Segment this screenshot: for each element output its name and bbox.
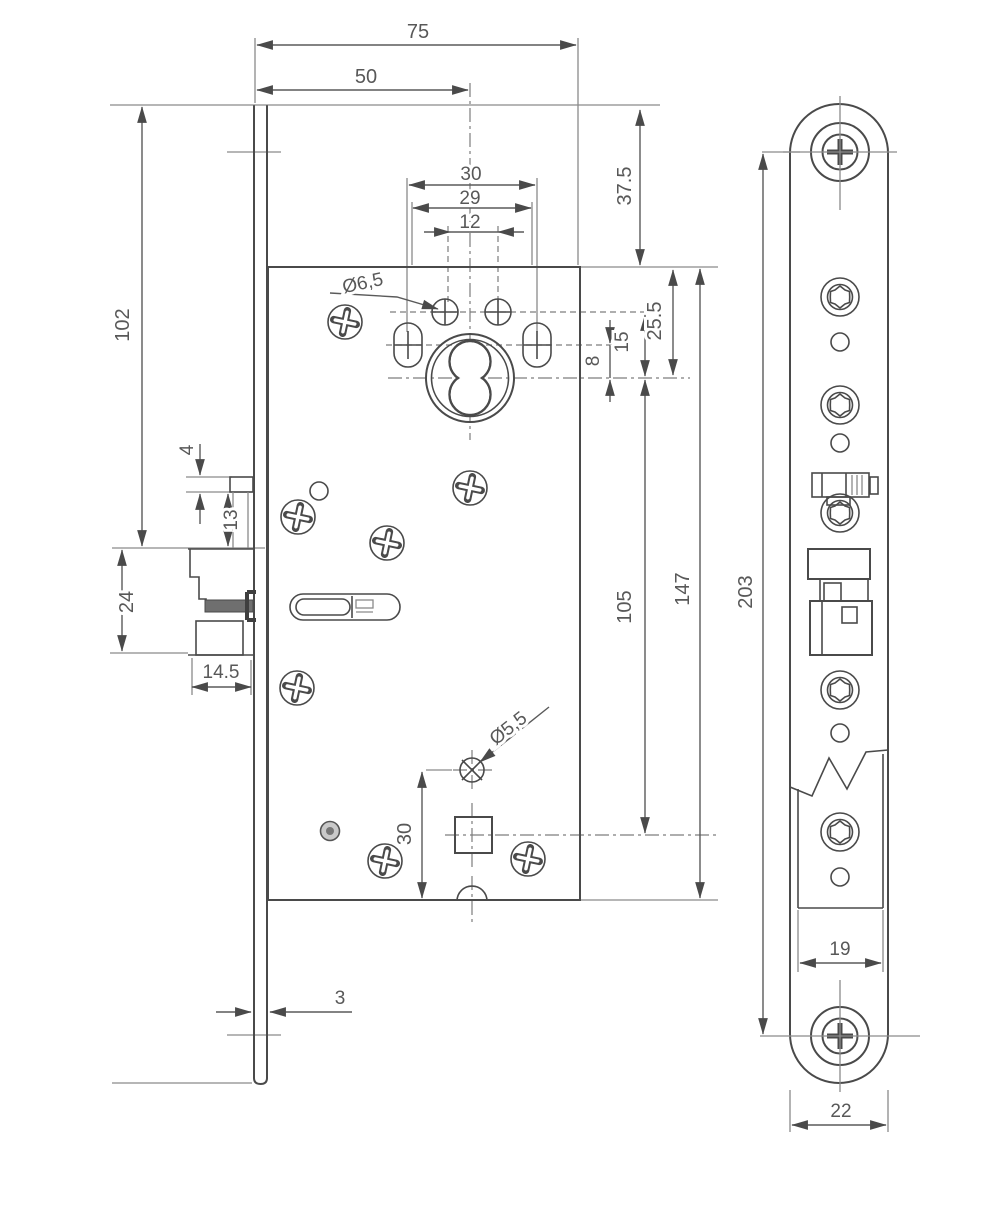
dim-24: 24 [116, 591, 138, 613]
lock-case-outline [268, 267, 580, 900]
torx-screw [821, 386, 859, 424]
dim-19: 19 [829, 939, 850, 960]
lock-technical-drawing-page: 75 50 30 29 12 Ø6,5 37.5 25.5 15 8 102 4… [0, 0, 1000, 1209]
faceplate-edge-view [254, 106, 267, 1084]
dim-29: 29 [459, 188, 480, 209]
dim-13: 13 [221, 509, 242, 530]
technical-drawing: 75 50 30 29 12 Ø6,5 37.5 25.5 15 8 102 4… [0, 0, 1000, 1209]
dim-25-5: 25.5 [644, 302, 666, 341]
side-view [760, 96, 920, 1132]
dim-105: 105 [614, 590, 636, 623]
small-hole [831, 333, 849, 351]
dim-147: 147 [672, 572, 694, 605]
dim-30-top: 30 [460, 164, 481, 185]
dim-50: 50 [355, 66, 377, 88]
faceplate-outline [790, 104, 888, 1083]
case-screw [281, 500, 315, 534]
rivet [321, 822, 340, 841]
dim-4: 4 [177, 444, 198, 455]
torx-screw [821, 671, 859, 709]
break-line [790, 750, 888, 796]
torx-screw [821, 278, 859, 316]
dim-14-5: 14.5 [203, 662, 240, 683]
case-screw [328, 305, 362, 339]
top-fixing-screw [783, 96, 897, 210]
bottom-fixing-screw [760, 980, 920, 1092]
dim-15: 15 [612, 331, 633, 352]
dim-75: 75 [407, 21, 429, 43]
case-screw [280, 671, 314, 705]
dim-12: 12 [459, 212, 480, 233]
dim-203: 203 [735, 575, 757, 608]
small-hole [831, 434, 849, 452]
torx-screw [821, 813, 859, 851]
spring-slot [290, 594, 400, 620]
small-hole [831, 868, 849, 886]
deadbolt-edge [808, 549, 872, 655]
fixing-hole-icon [432, 299, 458, 325]
small-hole [310, 482, 328, 500]
case-screw [453, 471, 487, 505]
latch-bolt-profile [188, 477, 256, 655]
small-hole [831, 724, 849, 742]
dim-dia6-5: Ø6,5 [341, 269, 386, 298]
case-screw [368, 844, 402, 878]
dim-dia5-5: Ø5,5 [486, 708, 531, 750]
dim-8: 8 [583, 356, 604, 367]
dimension-labels: 75 50 30 29 12 Ø6,5 37.5 25.5 15 8 102 4… [112, 21, 852, 1122]
latch-bolt-edge [812, 473, 878, 505]
dim-3: 3 [335, 988, 346, 1009]
fixing-hole-icon [485, 299, 511, 325]
dim-22: 22 [830, 1101, 851, 1122]
dim-30-bottom: 30 [394, 823, 416, 845]
case-screw [511, 842, 545, 876]
case-screw [370, 526, 404, 560]
dim-102: 102 [112, 308, 134, 341]
oblong-hole [394, 323, 422, 367]
dim-37-5: 37.5 [614, 167, 636, 206]
